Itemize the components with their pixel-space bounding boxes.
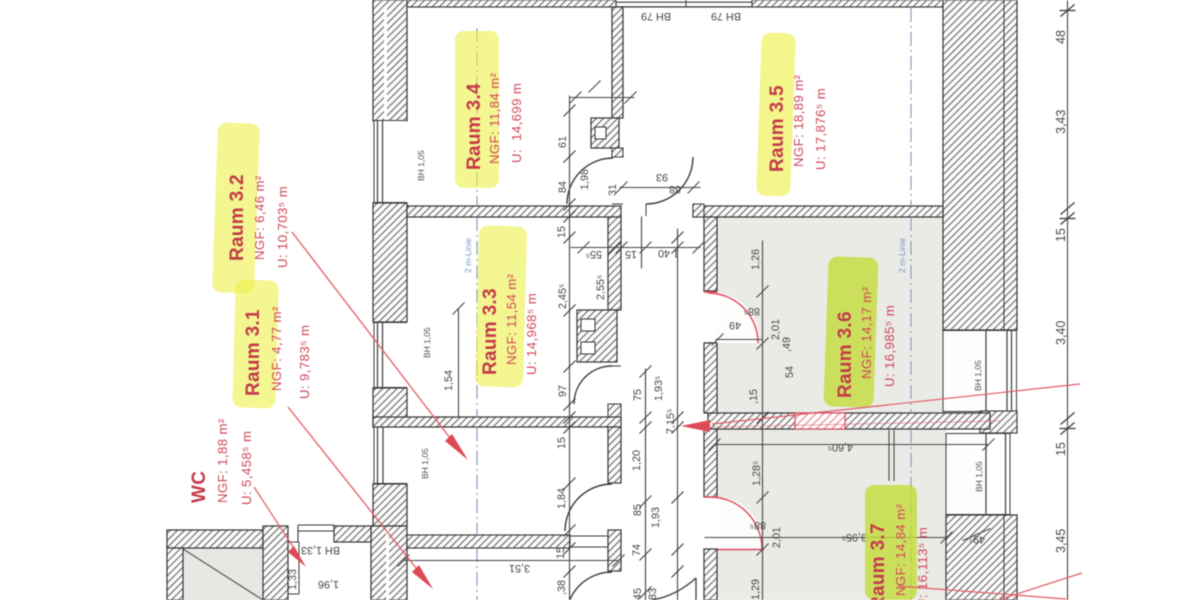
svg-text:NGF: 14,84 m²: NGF: 14,84 m² bbox=[893, 503, 908, 596]
svg-text:Raum 3.2: Raum 3.2 bbox=[227, 174, 248, 261]
svg-text:1,93⁵: 1,93⁵ bbox=[653, 376, 665, 402]
svg-text:49⁵: 49⁵ bbox=[969, 533, 986, 545]
svg-text:U: 14,968⁵ m: U: 14,968⁵ m bbox=[524, 293, 539, 375]
svg-text:Raum 3.1: Raum 3.1 bbox=[243, 309, 264, 396]
svg-text:15: 15 bbox=[555, 547, 567, 559]
svg-text:U: 17,876⁵ m: U: 17,876⁵ m bbox=[813, 88, 828, 170]
svg-text:88⁵: 88⁵ bbox=[750, 519, 767, 531]
svg-text:48: 48 bbox=[1054, 30, 1068, 44]
svg-text:NGF: 11,84 m²: NGF: 11,84 m² bbox=[487, 72, 502, 164]
svg-text:1,20: 1,20 bbox=[631, 450, 643, 471]
svg-text:2,01: 2,01 bbox=[770, 319, 782, 340]
svg-text:15: 15 bbox=[625, 248, 637, 260]
svg-text:4,60⁵: 4,60⁵ bbox=[828, 441, 854, 453]
svg-text:88: 88 bbox=[669, 183, 681, 195]
svg-text:Raum 3.4: Raum 3.4 bbox=[464, 83, 485, 170]
svg-text:75: 75 bbox=[632, 389, 644, 401]
svg-text:BH 79: BH 79 bbox=[641, 10, 671, 22]
svg-text:84: 84 bbox=[557, 181, 569, 193]
svg-text:NGF: 11,54 m²: NGF: 11,54 m² bbox=[504, 273, 519, 365]
svg-text:2 m-Linie: 2 m-Linie bbox=[897, 238, 907, 273]
svg-text:1,98: 1,98 bbox=[579, 169, 591, 190]
svg-text:15: 15 bbox=[1054, 442, 1068, 456]
svg-text:Raum 3.3: Raum 3.3 bbox=[480, 288, 501, 375]
svg-text:BH 1,05: BH 1,05 bbox=[973, 360, 983, 391]
svg-text:61: 61 bbox=[557, 136, 569, 148]
svg-text:93: 93 bbox=[656, 171, 668, 183]
svg-text:3,51: 3,51 bbox=[509, 562, 530, 574]
svg-text:15: 15 bbox=[1054, 228, 1068, 242]
svg-text:Raum 3.5: Raum 3.5 bbox=[767, 85, 788, 172]
svg-text:WC: WC bbox=[189, 471, 210, 503]
svg-text:1,29: 1,29 bbox=[750, 579, 762, 600]
svg-text:NGF: 18,89 m²: NGF: 18,89 m² bbox=[791, 74, 806, 167]
svg-text:1,84: 1,84 bbox=[556, 488, 568, 509]
svg-text:U: 5,458⁵ m: U: 5,458⁵ m bbox=[239, 431, 254, 505]
svg-text:1,96: 1,96 bbox=[318, 578, 339, 590]
svg-text:,49: ,49 bbox=[781, 337, 793, 352]
svg-text:83: 83 bbox=[647, 588, 659, 600]
svg-text:1,93: 1,93 bbox=[650, 507, 662, 528]
svg-text:15: 15 bbox=[556, 437, 568, 449]
svg-text:1,26: 1,26 bbox=[750, 249, 762, 270]
svg-text:3,45: 3,45 bbox=[1054, 529, 1068, 553]
svg-text:15: 15 bbox=[556, 226, 568, 238]
svg-text:85: 85 bbox=[632, 504, 644, 516]
svg-text:49: 49 bbox=[729, 319, 741, 331]
svg-text:BH 1,05: BH 1,05 bbox=[422, 327, 432, 358]
svg-text:1,28⁵: 1,28⁵ bbox=[751, 461, 763, 487]
svg-text:U: 14,699 m: U: 14,699 m bbox=[509, 83, 524, 163]
svg-text:U: 10,703⁵ m: U: 10,703⁵ m bbox=[275, 186, 290, 268]
svg-text:BH 79: BH 79 bbox=[711, 10, 741, 22]
svg-text:54: 54 bbox=[784, 366, 796, 378]
svg-text:55⁵: 55⁵ bbox=[586, 248, 603, 260]
svg-text:97: 97 bbox=[557, 385, 569, 397]
svg-text:31: 31 bbox=[607, 184, 619, 196]
svg-text:BH 1,05: BH 1,05 bbox=[416, 150, 426, 181]
svg-text:Raum 3.6: Raum 3.6 bbox=[835, 311, 856, 398]
svg-text:U: 9,783⁵ m: U: 9,783⁵ m bbox=[297, 325, 312, 399]
svg-text:Raum 3.7: Raum 3.7 bbox=[868, 523, 889, 600]
svg-text:3,40: 3,40 bbox=[1054, 321, 1068, 345]
svg-text:2,45⁵: 2,45⁵ bbox=[557, 284, 569, 310]
svg-text:3,43: 3,43 bbox=[1054, 110, 1068, 134]
svg-text:7,15⁵: 7,15⁵ bbox=[665, 409, 677, 435]
svg-text:BH 1,33: BH 1,33 bbox=[301, 544, 340, 556]
svg-text:BH 1,05: BH 1,05 bbox=[974, 461, 984, 492]
svg-text:,38: ,38 bbox=[556, 580, 568, 595]
svg-text:,15: ,15 bbox=[748, 389, 760, 404]
svg-text:88⁵: 88⁵ bbox=[744, 305, 761, 317]
svg-text:1 40: 1 40 bbox=[658, 247, 679, 259]
svg-text:BH 1,05: BH 1,05 bbox=[420, 448, 430, 479]
svg-text:2,01: 2,01 bbox=[771, 527, 783, 548]
svg-text:NGF: 14,17 m²: NGF: 14,17 m² bbox=[859, 286, 874, 379]
svg-text:45: 45 bbox=[632, 588, 644, 600]
svg-text:NGF: 4,77 m²: NGF: 4,77 m² bbox=[269, 306, 284, 391]
svg-text:U: 16,985⁵ m: U: 16,985⁵ m bbox=[882, 305, 897, 387]
svg-text:2,55⁵: 2,55⁵ bbox=[595, 275, 607, 301]
svg-text:U: 16,113⁵ m: U: 16,113⁵ m bbox=[915, 527, 930, 600]
svg-text:3,95⁵: 3,95⁵ bbox=[842, 531, 868, 543]
svg-text:NGF: 6,46 m²: NGF: 6,46 m² bbox=[252, 175, 267, 260]
svg-text:NGF: 1,88 m²: NGF: 1,88 m² bbox=[215, 418, 230, 503]
svg-text:1,33: 1,33 bbox=[287, 569, 299, 590]
svg-text:74: 74 bbox=[631, 544, 643, 556]
svg-text:2 m-Linie: 2 m-Linie bbox=[463, 238, 473, 273]
svg-text:1,54: 1,54 bbox=[443, 370, 455, 391]
